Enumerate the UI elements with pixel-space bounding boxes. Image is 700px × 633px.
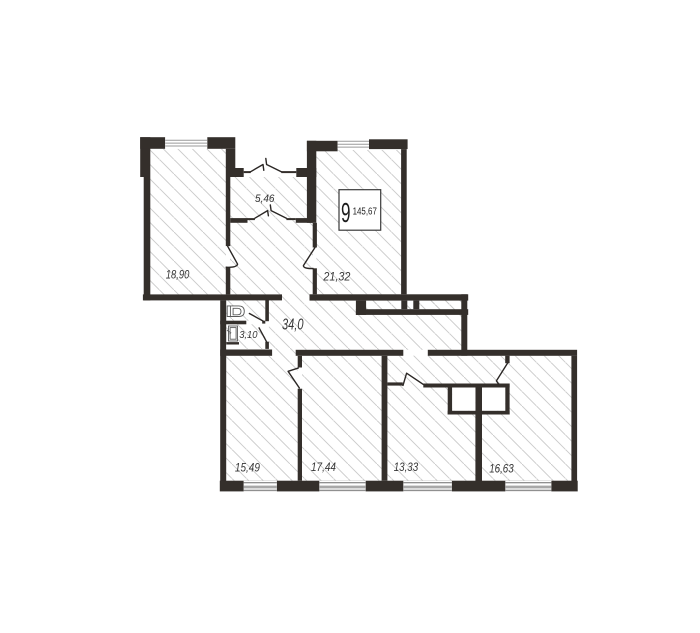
svg-text:3,10: 3,10	[239, 329, 257, 341]
svg-text:17,44: 17,44	[311, 460, 336, 474]
svg-text:34,0: 34,0	[282, 317, 304, 334]
svg-text:18,90: 18,90	[166, 270, 190, 282]
svg-text:9: 9	[341, 197, 351, 228]
svg-text:145,67: 145,67	[353, 206, 377, 217]
svg-text:15,49: 15,49	[235, 460, 260, 474]
svg-text:16,63: 16,63	[489, 462, 514, 476]
svg-text:13,33: 13,33	[394, 460, 419, 474]
svg-text:21,32: 21,32	[322, 272, 351, 284]
svg-text:5,46: 5,46	[255, 193, 275, 205]
